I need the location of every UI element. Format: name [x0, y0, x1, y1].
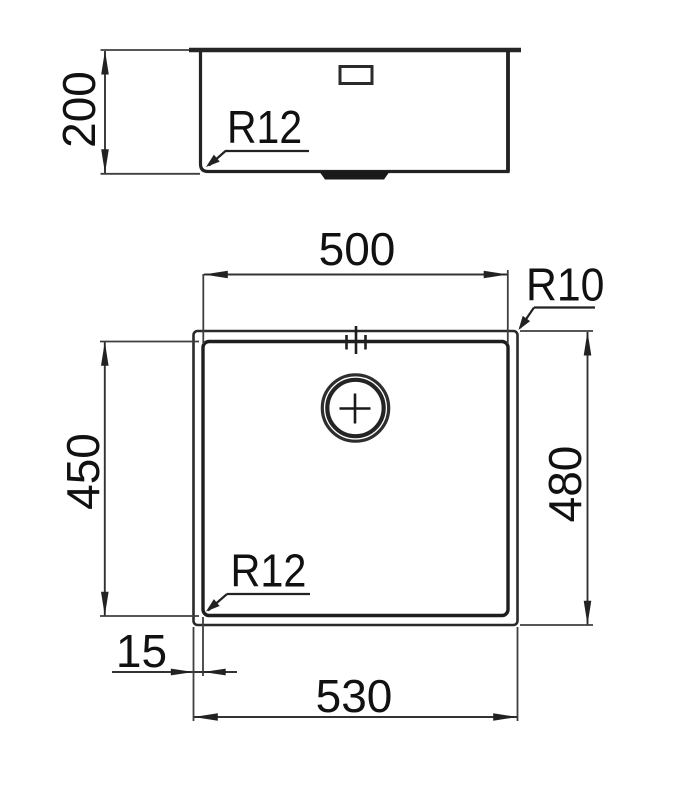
svg-text:15: 15 [116, 625, 167, 677]
svg-text:R10: R10 [526, 260, 604, 311]
svg-text:530: 530 [316, 670, 393, 722]
svg-text:R12: R12 [231, 546, 307, 598]
svg-text:R12: R12 [227, 103, 302, 154]
svg-text:200: 200 [53, 71, 105, 148]
svg-text:480: 480 [539, 446, 591, 523]
svg-text:500: 500 [319, 223, 396, 275]
svg-text:450: 450 [57, 433, 109, 510]
